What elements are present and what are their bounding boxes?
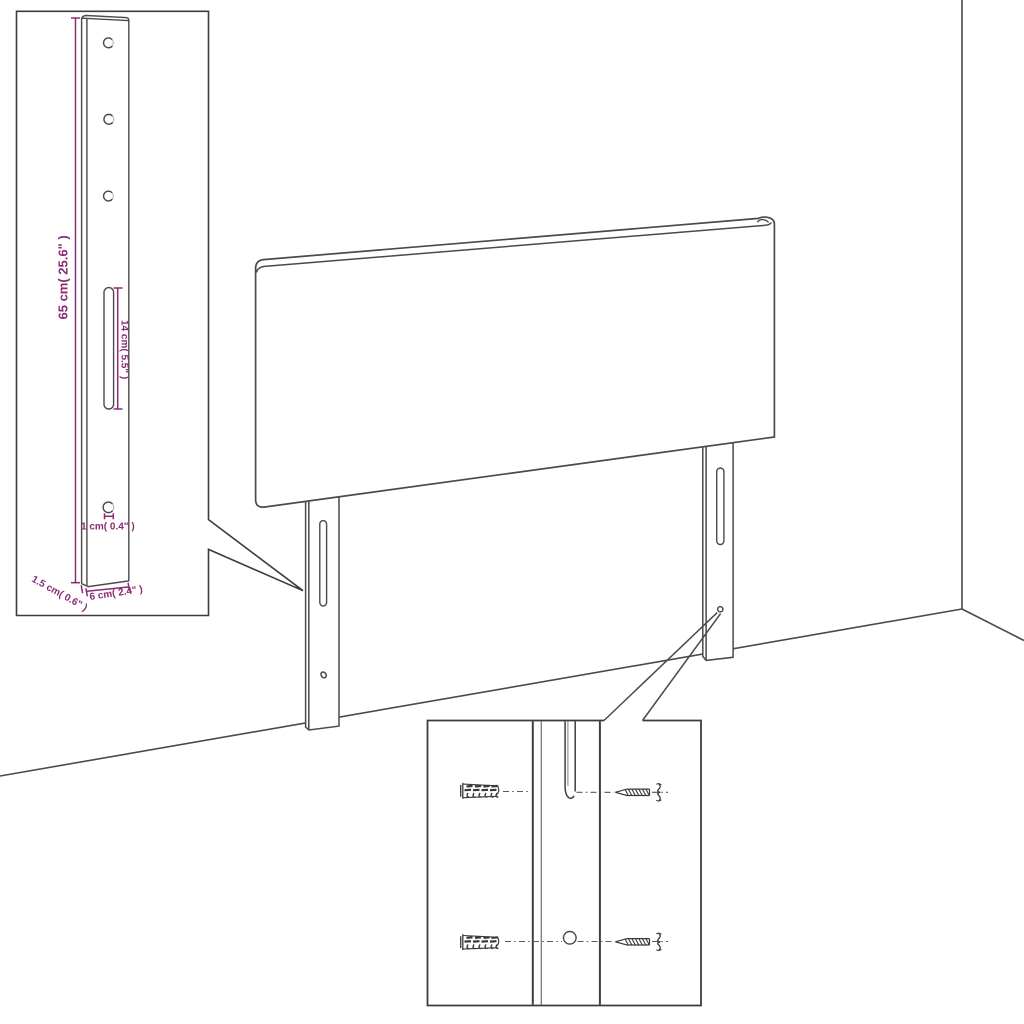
svg-text:65 cm( 25.6" ): 65 cm( 25.6" ) (56, 235, 71, 319)
svg-text:14 cm( 5.5" ): 14 cm( 5.5" ) (119, 320, 130, 379)
svg-text:1 cm( 0.4" ): 1 cm( 0.4" ) (81, 522, 135, 533)
